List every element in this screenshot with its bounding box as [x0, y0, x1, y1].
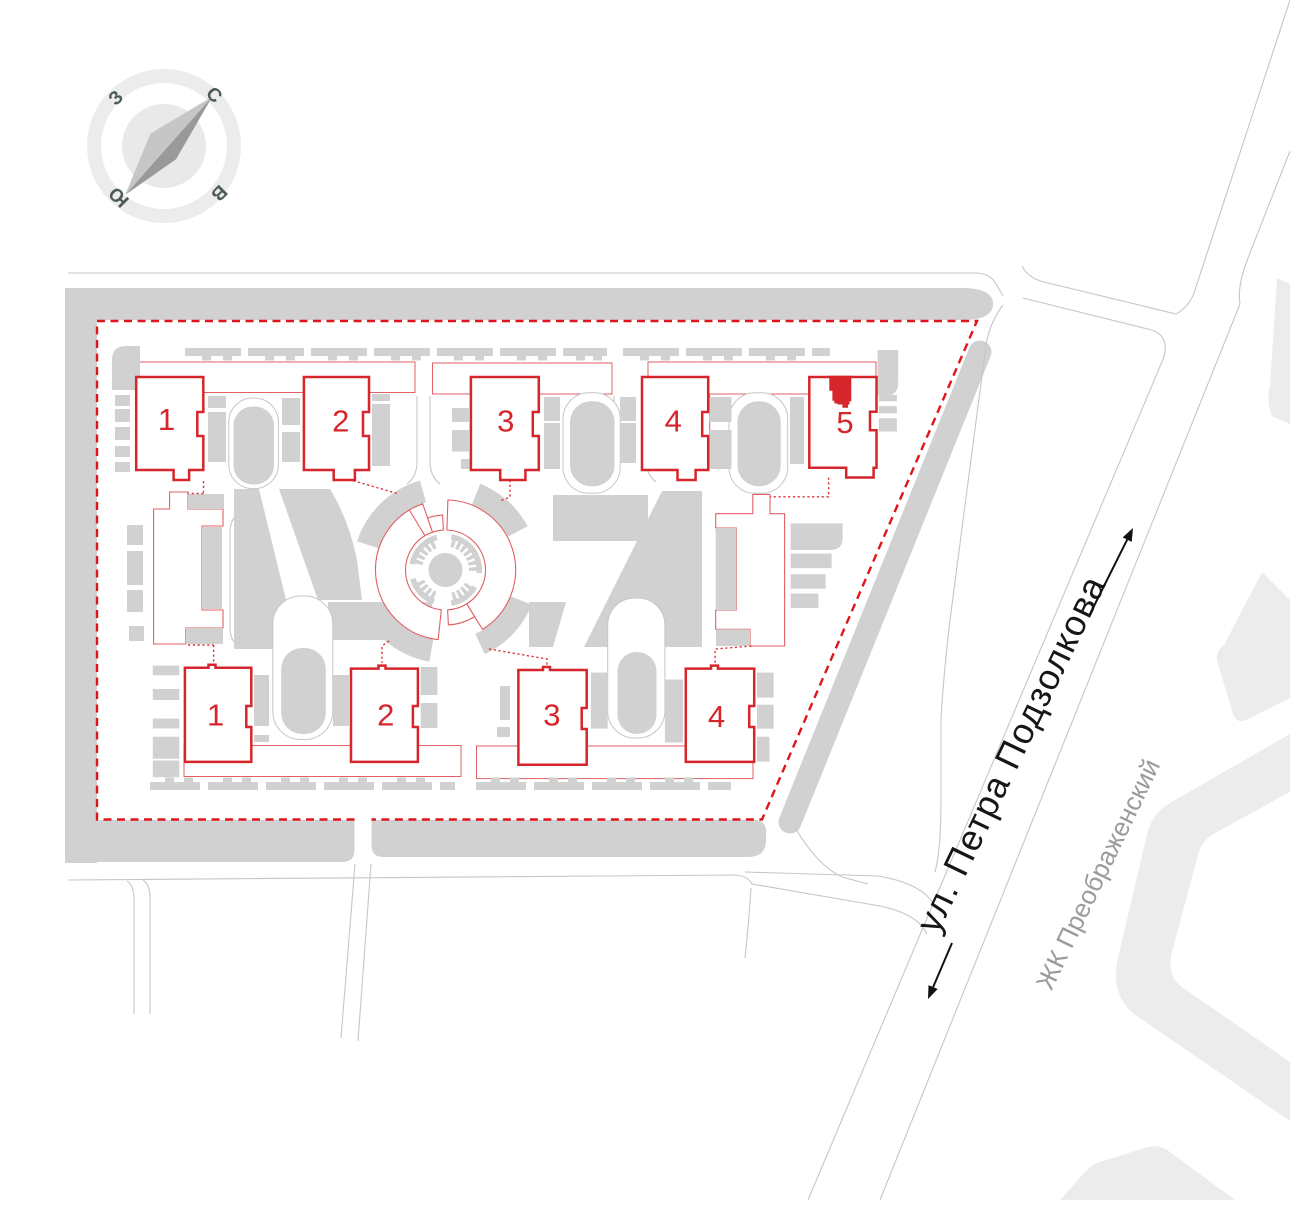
svg-text:2: 2	[332, 404, 349, 439]
svg-text:3: 3	[497, 404, 514, 439]
svg-text:4: 4	[708, 699, 725, 734]
svg-text:1: 1	[158, 402, 175, 437]
svg-text:4: 4	[665, 404, 682, 439]
svg-text:1: 1	[207, 697, 224, 732]
svg-text:3: 3	[543, 697, 560, 732]
svg-text:5: 5	[836, 405, 853, 440]
svg-text:2: 2	[377, 697, 394, 732]
